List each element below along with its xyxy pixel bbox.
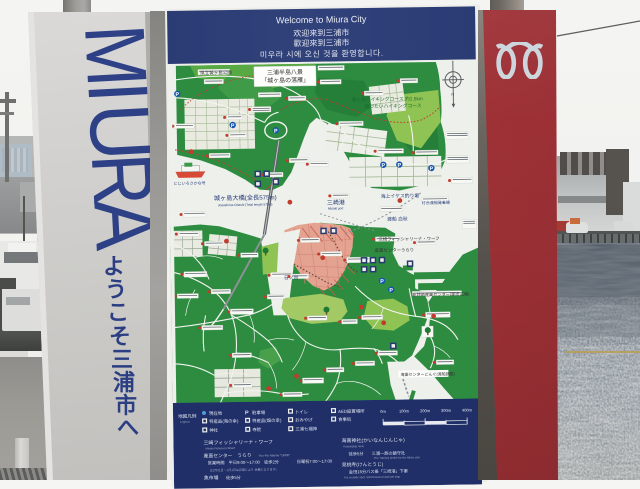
svg-text:Jogashima Ohashi (Total length: Jogashima Ohashi (Total length 575m) <box>218 202 273 207</box>
svg-text:浦: 浦 <box>113 370 135 395</box>
svg-text:N: N <box>451 92 454 97</box>
svg-text:P: P <box>231 123 235 129</box>
svg-text:300m: 300m <box>441 408 452 413</box>
svg-text:よ: よ <box>103 254 125 279</box>
svg-text:う: う <box>105 277 127 302</box>
svg-text:トイレ: トイレ <box>295 409 308 414</box>
svg-text:Misaki port: Misaki port <box>328 206 344 210</box>
svg-text:200m: 200m <box>420 408 431 413</box>
svg-text:海業センターどんぐ(渡船調整): 海業センターどんぐ(渡船調整) <box>400 370 455 377</box>
svg-text:三: 三 <box>111 347 133 372</box>
svg-text:P: P <box>274 129 278 135</box>
svg-text:Yun-For Marine "UMIR": Yun-For Marine "UMIR" <box>259 453 290 457</box>
svg-text:三崎港: 三崎港 <box>327 198 345 206</box>
svg-text:P: P <box>380 279 384 285</box>
svg-text:P: P <box>389 288 393 294</box>
svg-text:三崎フィッシャリーナ・ワーフ: 三崎フィッシャリーナ・ワーフ <box>203 438 273 446</box>
svg-text:The Tutelary shrine for the Mi: The Tutelary shrine for the Miura clan <box>374 455 421 460</box>
svg-text:Kainanjinja none: Kainanjinja none <box>343 444 364 448</box>
svg-text:0m: 0m <box>380 409 386 414</box>
svg-text:(12月31日・1月1日は店舗により 休業となります): (12月31日・1月1日は店舗により 休業となります) <box>210 466 277 472</box>
svg-text:It is seaside spot. Visit Powe: It is seaside spot. Visit Powered and la… <box>344 475 401 480</box>
svg-text:にじいろさかな号: にじいろさかな号 <box>174 179 206 185</box>
svg-text:そ: そ <box>109 324 131 349</box>
svg-text:海南神社(かいなんじんじゃ): 海南神社(かいなんじんじゃ) <box>341 436 405 444</box>
svg-text:Misaki Fisharena Wharf: Misaki Fisharena Wharf <box>205 446 235 450</box>
svg-text:Legend: Legend <box>180 420 190 424</box>
svg-text:100m: 100m <box>399 408 410 413</box>
svg-text:へ: へ <box>117 415 139 440</box>
svg-text:P: P <box>245 410 249 416</box>
svg-text:こ: こ <box>107 300 129 325</box>
svg-text:城ヶ島大橋(全長575m): 城ヶ島大橋(全長575m) <box>214 193 277 202</box>
svg-text:400m: 400m <box>462 407 473 412</box>
svg-text:灯台渡船発着場: 灯台渡船発着場 <box>422 199 450 205</box>
svg-text:P: P <box>430 166 434 172</box>
svg-text:P: P <box>397 163 401 169</box>
svg-text:P: P <box>381 163 385 169</box>
svg-text:P: P <box>175 92 179 98</box>
